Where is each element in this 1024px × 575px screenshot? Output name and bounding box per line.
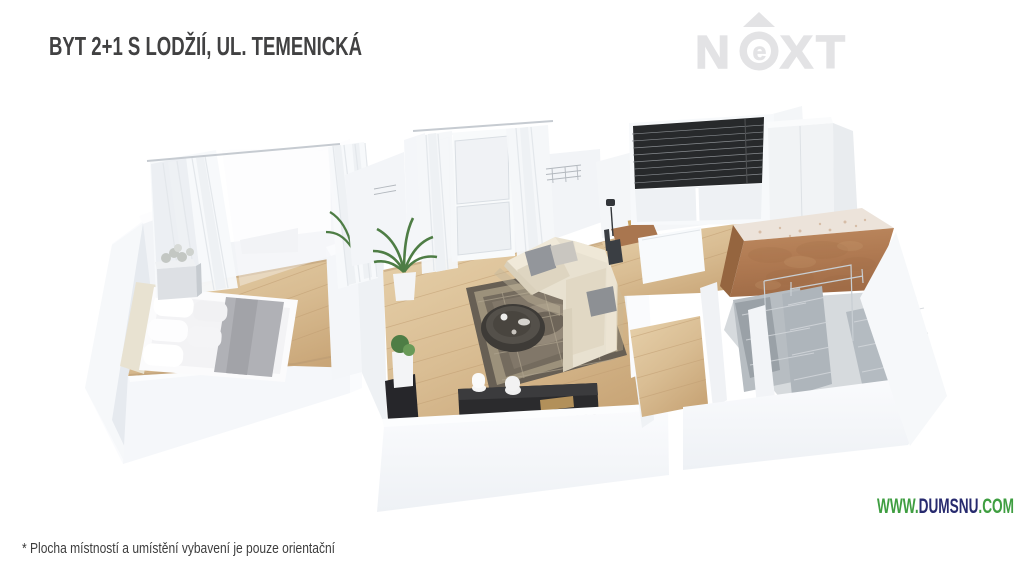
svg-text:WWW.DUMSNU.COM: WWW.DUMSNU.COM [877,495,1014,518]
svg-text:X: X [780,26,813,78]
svg-text:* Plocha místností a umístění: * Plocha místností a umístění vybavení j… [22,540,336,557]
svg-text:T: T [816,26,845,78]
svg-text:e: e [753,38,767,66]
svg-text:BYT 2+1 S LODŽIÍ, UL. TEMENICK: BYT 2+1 S LODŽIÍ, UL. TEMENICKÁ [49,31,362,61]
svg-text:N: N [695,26,730,78]
